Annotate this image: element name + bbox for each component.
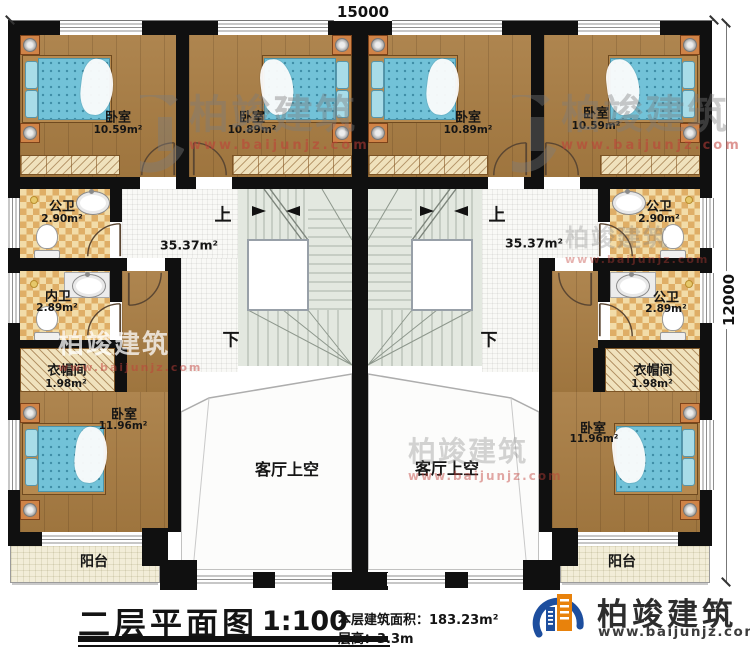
room-label-bath-public-left: 公卫 <box>49 196 75 215</box>
sink <box>612 191 646 215</box>
pillow <box>25 61 38 89</box>
wall <box>598 189 610 222</box>
drawing-scale: 1:100 <box>262 606 348 637</box>
door-arc <box>557 271 593 307</box>
window <box>6 273 20 323</box>
room-label-balcony-left: 阳台 <box>80 551 108 571</box>
stair-down-label-right: 下 <box>481 326 498 351</box>
window <box>387 573 445 586</box>
toilet <box>34 224 60 258</box>
wall <box>160 560 197 590</box>
balcony-door-window <box>42 533 142 546</box>
door-arc <box>86 302 122 338</box>
nightstand <box>332 123 352 143</box>
wall <box>253 572 275 588</box>
wall <box>8 323 20 420</box>
sink <box>616 274 650 298</box>
hall-area-left: 35.37m² <box>160 238 218 253</box>
door-arc <box>140 141 176 177</box>
wardrobe-strip <box>368 155 488 175</box>
wall <box>176 177 196 189</box>
wall <box>598 271 610 302</box>
floor-height-label: 层高： <box>338 632 377 647</box>
wall <box>165 258 181 271</box>
room-area-bedroom-bottom-right: 11.96m² <box>570 433 619 445</box>
door-arc <box>86 222 122 258</box>
wall <box>539 271 552 532</box>
toilet-bowl <box>36 224 58 249</box>
window <box>700 420 714 490</box>
room-label-cloakroom-right: 衣帽间 <box>633 360 672 379</box>
wall <box>232 177 352 189</box>
nightstand <box>332 35 352 55</box>
dimension-value-right: 12000 <box>720 271 738 329</box>
lamp-icon <box>371 126 385 140</box>
party-wall <box>352 20 368 583</box>
lamp-icon <box>683 38 697 52</box>
pillow <box>25 458 38 486</box>
wall <box>523 560 560 590</box>
toilet <box>660 224 686 258</box>
room-label-balcony-right: 阳台 <box>608 551 636 571</box>
door-arc <box>544 141 580 177</box>
floor-height-line: 层高：3.3m <box>338 628 414 647</box>
door-arc <box>598 302 634 338</box>
room-area-bath-public-mid-right: 2.89m² <box>645 303 686 315</box>
faucet-icon <box>625 189 630 194</box>
pillow <box>682 429 695 457</box>
nightstand <box>680 35 700 55</box>
room-label-living-void-right: 客厅上空 <box>415 455 479 479</box>
wall <box>8 490 20 533</box>
floor-drain-icon <box>685 196 693 204</box>
room-label-cloakroom-left: 衣帽间 <box>47 360 86 379</box>
sink <box>76 191 110 215</box>
nightstand <box>680 403 700 423</box>
pillow <box>682 90 695 118</box>
wall <box>700 323 712 420</box>
lamp-icon <box>371 38 385 52</box>
bed-bottom-left <box>22 423 106 495</box>
lamp-icon <box>23 406 37 420</box>
bed-bottom-right <box>614 423 698 495</box>
wardrobe-strip <box>232 155 352 175</box>
room-area-cloakroom-left: 1.98m² <box>45 378 86 390</box>
nightstand <box>20 123 40 143</box>
floor-drain-icon <box>30 196 38 204</box>
wall <box>445 572 468 588</box>
lamp-icon <box>23 503 37 517</box>
room-area-bedroom-top-mid-right: 10.89m² <box>444 124 493 136</box>
sink <box>72 274 106 298</box>
stair-up-label-left: 上 <box>215 201 232 226</box>
floor-height-value: 3.3m <box>377 632 414 647</box>
wall <box>524 177 544 189</box>
faucet-icon <box>85 272 90 277</box>
window <box>468 573 523 586</box>
nightstand <box>20 35 40 55</box>
dimension-value-top: 15000 <box>334 3 392 21</box>
floor-drain-icon <box>685 280 693 288</box>
faucet-icon <box>89 189 94 194</box>
wall <box>332 572 388 590</box>
lamp-icon <box>335 126 349 140</box>
faucet-icon <box>629 272 634 277</box>
door-arc <box>598 222 634 258</box>
room-area-bedroom-top-right: 10.59m² <box>572 120 621 132</box>
wall <box>8 532 42 546</box>
pillow <box>25 429 38 457</box>
wardrobe-strip <box>600 155 700 175</box>
floor-area-label: 本层建筑面积： <box>338 613 429 628</box>
hall-floor-right-lower <box>482 258 539 372</box>
room-label-bedroom-top-left: 卧室 <box>105 107 131 126</box>
stair-up-label-right: 上 <box>489 201 506 226</box>
hall-area-right: 35.37m² <box>505 236 563 251</box>
stair-down-label-left: 下 <box>223 326 240 351</box>
nightstand <box>368 35 388 55</box>
nightstand <box>368 123 388 143</box>
window <box>6 198 20 248</box>
room-area-bath-public-top-right: 2.90m² <box>638 213 679 225</box>
door-arc <box>127 271 163 307</box>
hall-floor-left-lower <box>181 258 238 372</box>
pillow <box>682 61 695 89</box>
wall <box>593 258 712 271</box>
wardrobe-strip <box>20 155 120 175</box>
window <box>700 198 714 248</box>
pillow <box>25 90 38 118</box>
bed-top-mid-right <box>368 55 458 123</box>
room-area-bath-public-left: 2.90m² <box>41 213 82 225</box>
bed-top-mid-left <box>262 55 352 123</box>
room-label-living-void-left: 客厅上空 <box>255 456 319 480</box>
room-label-bath-public-top-right: 公卫 <box>646 196 672 215</box>
room-area-cloakroom-right: 1.98m² <box>631 378 672 390</box>
wall <box>700 20 712 198</box>
brand-url: www.baijunjz.com <box>598 624 750 640</box>
wall <box>115 348 127 392</box>
wall <box>8 177 140 189</box>
door-arc <box>492 141 528 177</box>
wall <box>539 258 555 271</box>
nightstand <box>680 500 700 520</box>
floor-area-value: 183.23m² <box>429 613 498 628</box>
pillow <box>682 458 695 486</box>
window <box>218 21 328 34</box>
staircase-left <box>238 189 352 366</box>
bed-top-left <box>22 55 112 123</box>
balcony-door-window <box>578 533 678 546</box>
window <box>197 573 253 586</box>
lamp-icon <box>683 406 697 420</box>
wall <box>368 177 488 189</box>
pillow <box>371 61 384 89</box>
room-label-bedroom-top-mid-left: 卧室 <box>239 107 265 126</box>
wall <box>598 340 712 348</box>
wall <box>176 20 189 177</box>
nightstand <box>20 403 40 423</box>
wall <box>8 20 20 198</box>
wall <box>110 189 122 222</box>
wall <box>700 490 712 533</box>
pillow <box>336 61 349 89</box>
floor-area-line: 本层建筑面积：183.23m² <box>338 609 498 628</box>
wall <box>531 20 544 177</box>
wall <box>8 258 127 271</box>
room-area-bedroom-top-mid-left: 10.89m² <box>228 124 277 136</box>
lamp-icon <box>23 126 37 140</box>
window <box>578 21 660 34</box>
room-label-bedroom-top-mid-right: 卧室 <box>455 107 481 126</box>
room-label-bedroom-top-right: 卧室 <box>583 103 609 122</box>
brand-logo-icon <box>532 588 586 648</box>
lamp-icon <box>683 126 697 140</box>
window <box>6 420 20 490</box>
nightstand <box>20 500 40 520</box>
staircase-right <box>368 189 482 366</box>
bed-top-right <box>608 55 698 123</box>
wall <box>168 271 181 532</box>
lamp-icon <box>335 38 349 52</box>
wall <box>110 271 122 302</box>
window <box>60 21 142 34</box>
wall <box>8 340 122 348</box>
toilet-bowl <box>662 224 684 249</box>
room-area-bedroom-bottom-left: 11.96m² <box>99 420 148 432</box>
wall <box>580 177 712 189</box>
floor-drain-icon <box>30 280 38 288</box>
room-area-bedroom-top-left: 10.59m² <box>94 124 143 136</box>
window <box>392 21 502 34</box>
window <box>275 573 332 586</box>
floorplan-root: 卧室 10.59m² 卧室 10.89m² 公卫 2.90m² 内卫 2.89m… <box>0 0 750 654</box>
door-arc <box>192 141 228 177</box>
lamp-icon <box>23 38 37 52</box>
wall <box>593 348 605 392</box>
room-area-bath-inner-left: 2.89m² <box>36 302 77 314</box>
lamp-icon <box>683 503 697 517</box>
window <box>700 273 714 323</box>
pillow <box>336 90 349 118</box>
wall <box>678 532 712 546</box>
pillow <box>371 90 384 118</box>
nightstand <box>680 123 700 143</box>
